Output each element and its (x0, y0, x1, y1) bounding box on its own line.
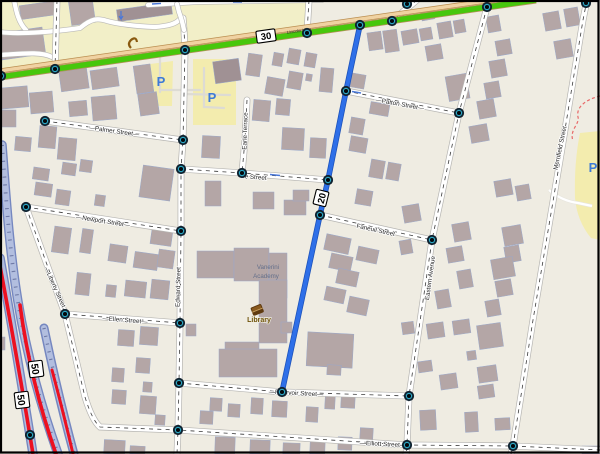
svg-text:P: P (157, 74, 166, 89)
svg-text:50: 50 (28, 363, 40, 376)
svg-text:30: 30 (260, 31, 272, 43)
svg-text:Vanerini: Vanerini (257, 264, 279, 271)
svg-text:Academy: Academy (253, 273, 280, 280)
svg-text:Edward Street: Edward Street (174, 267, 182, 307)
svg-text:P: P (589, 160, 598, 175)
svg-text:P: P (208, 90, 217, 105)
svg-text:50: 50 (14, 394, 26, 407)
svg-text:Library: Library (247, 317, 271, 324)
svg-text:Earle Terrace: Earle Terrace (241, 112, 249, 150)
